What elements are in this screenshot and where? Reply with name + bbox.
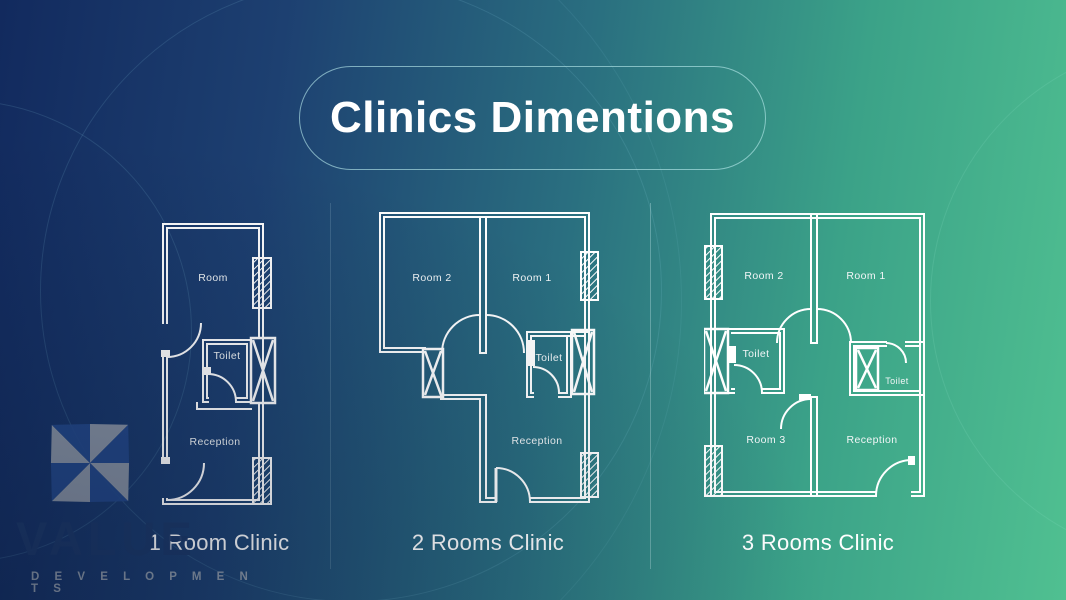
logo-subtitle: D E V E L O P M E N T S	[31, 571, 260, 595]
floor-plan-2-rooms: Room 2 Room 1 Toilet Reception	[375, 210, 601, 505]
toilet-left-label: Toilet	[743, 348, 770, 360]
room1-label: Room 1	[512, 272, 551, 284]
pinwheel-logo-icon	[30, 403, 150, 523]
reception-label: Reception	[512, 435, 563, 447]
caption-2-rooms-clinic: 2 Rooms Clinic	[348, 530, 628, 556]
room2-label: Room 2	[744, 270, 783, 282]
section-divider-right	[650, 203, 651, 569]
floor-plan-3-rooms: Room 2 Room 1 Toilet Toilet Room 3 Recep…	[704, 207, 930, 502]
caption-3-rooms-clinic: 3 Rooms Clinic	[678, 530, 958, 556]
reception-label: Reception	[847, 434, 898, 446]
toilet-label: Toilet	[536, 352, 563, 364]
room1-label: Room 1	[846, 270, 885, 282]
toilet-right-label: Toilet	[885, 376, 909, 386]
room-label: Room	[198, 272, 228, 284]
decorative-ring	[930, 40, 1066, 562]
door-stub	[729, 346, 915, 465]
room2-label: Room 2	[412, 272, 451, 284]
door-stub	[528, 340, 535, 366]
slide-canvas: Clinics Dimentions	[0, 0, 1066, 600]
door-arc	[734, 309, 912, 496]
toilet-label: Toilet	[214, 350, 241, 362]
company-logo: VALUE D E V E L O P M E N T S	[0, 395, 260, 600]
page-title: Clinics Dimentions	[330, 93, 735, 143]
logo-wordmark: VALUE	[16, 511, 197, 566]
room3-label: Room 3	[746, 434, 785, 446]
shaft-symbol	[423, 330, 594, 397]
door-arc	[442, 315, 559, 502]
section-divider-left	[330, 203, 331, 569]
title-pill: Clinics Dimentions	[299, 66, 766, 170]
